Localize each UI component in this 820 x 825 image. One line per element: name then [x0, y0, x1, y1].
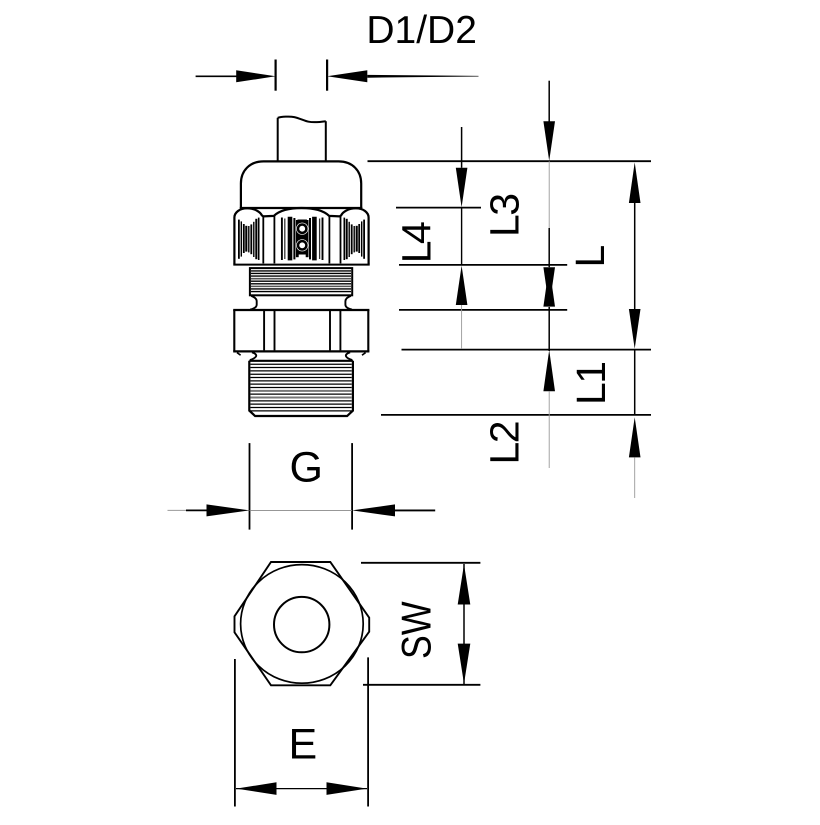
svg-text:L1: L1 [568, 362, 614, 405]
svg-text:L: L [567, 245, 613, 268]
svg-text:L3: L3 [481, 194, 527, 237]
svg-text:SW: SW [394, 601, 440, 659]
svg-text:L2: L2 [482, 422, 528, 465]
svg-text:L4: L4 [393, 222, 439, 263]
svg-text:G: G [289, 444, 322, 492]
svg-text:D1/D2: D1/D2 [366, 9, 477, 52]
svg-text:E: E [289, 721, 318, 769]
